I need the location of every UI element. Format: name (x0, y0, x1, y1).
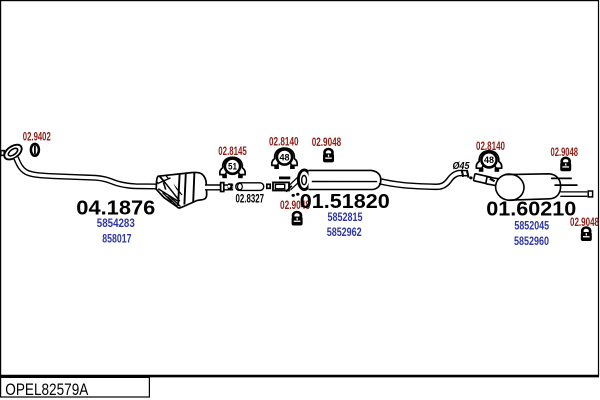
svg-text:02.8327: 02.8327 (236, 193, 265, 206)
svg-text:OPEL82579A: OPEL82579A (5, 381, 88, 399)
svg-text:02.8145: 02.8145 (218, 145, 247, 158)
svg-text:02.8140: 02.8140 (269, 136, 299, 149)
svg-text:5852960: 5852960 (514, 234, 549, 248)
svg-text:5852815: 5852815 (328, 210, 363, 224)
svg-text:48: 48 (280, 151, 290, 162)
svg-text:5852045: 5852045 (514, 218, 549, 232)
svg-text:51: 51 (228, 161, 237, 172)
svg-text:02.9048: 02.9048 (551, 146, 579, 159)
svg-text:5852962: 5852962 (327, 225, 362, 239)
svg-text:02.9402: 02.9402 (23, 131, 51, 144)
svg-text:858017: 858017 (102, 231, 132, 245)
svg-text:5854283: 5854283 (97, 216, 135, 230)
svg-text:01.60210: 01.60210 (486, 199, 576, 221)
svg-text:Ø45: Ø45 (453, 160, 470, 172)
svg-text:48: 48 (484, 154, 494, 165)
svg-text:02.8140: 02.8140 (476, 140, 505, 153)
svg-text:02.9048: 02.9048 (312, 136, 342, 149)
